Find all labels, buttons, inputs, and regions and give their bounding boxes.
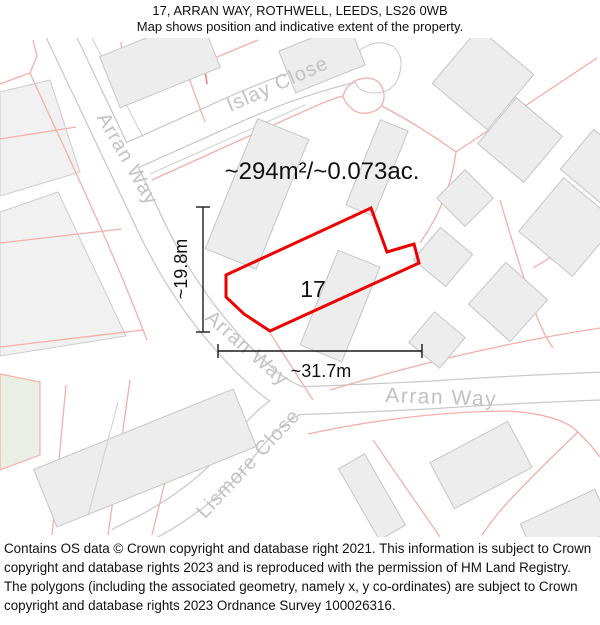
width-dimension-label: ~31.7m bbox=[291, 361, 352, 381]
building bbox=[430, 421, 532, 508]
property-map: Islay Close Arran Way Arran Way Arran Wa… bbox=[0, 38, 600, 537]
building bbox=[339, 454, 406, 537]
building bbox=[205, 119, 308, 269]
building bbox=[413, 227, 472, 286]
map-canvas: Islay Close Arran Way Arran Way Arran Wa… bbox=[0, 38, 600, 537]
footer: Contains OS data © Crown copyright and d… bbox=[0, 537, 600, 616]
area-label: ~294m²/~0.073ac. bbox=[225, 158, 420, 185]
plot-number-label: 17 bbox=[300, 276, 326, 302]
dimension-annotations: ~19.8m ~31.7m bbox=[171, 207, 422, 381]
street-label-arran-way-east: Arran Way bbox=[385, 384, 498, 411]
map-subtitle: Map shows position and indicative extent… bbox=[0, 19, 600, 35]
building bbox=[409, 312, 465, 368]
building bbox=[300, 250, 380, 361]
copyright-text: Contains OS data © Crown copyright and d… bbox=[0, 537, 600, 616]
map-title: 17, ARRAN WAY, ROTHWELL, LEEDS, LS26 0WB… bbox=[0, 0, 600, 35]
parcel-block bbox=[0, 192, 126, 356]
building bbox=[468, 262, 547, 341]
building bbox=[437, 170, 494, 227]
building bbox=[520, 489, 600, 537]
green-space bbox=[0, 374, 40, 470]
height-dimension-label: ~19.8m bbox=[171, 239, 191, 300]
building bbox=[100, 38, 221, 108]
property-address: 17, ARRAN WAY, ROTHWELL, LEEDS, LS26 0WB bbox=[0, 3, 600, 19]
parcel-block bbox=[0, 80, 80, 196]
